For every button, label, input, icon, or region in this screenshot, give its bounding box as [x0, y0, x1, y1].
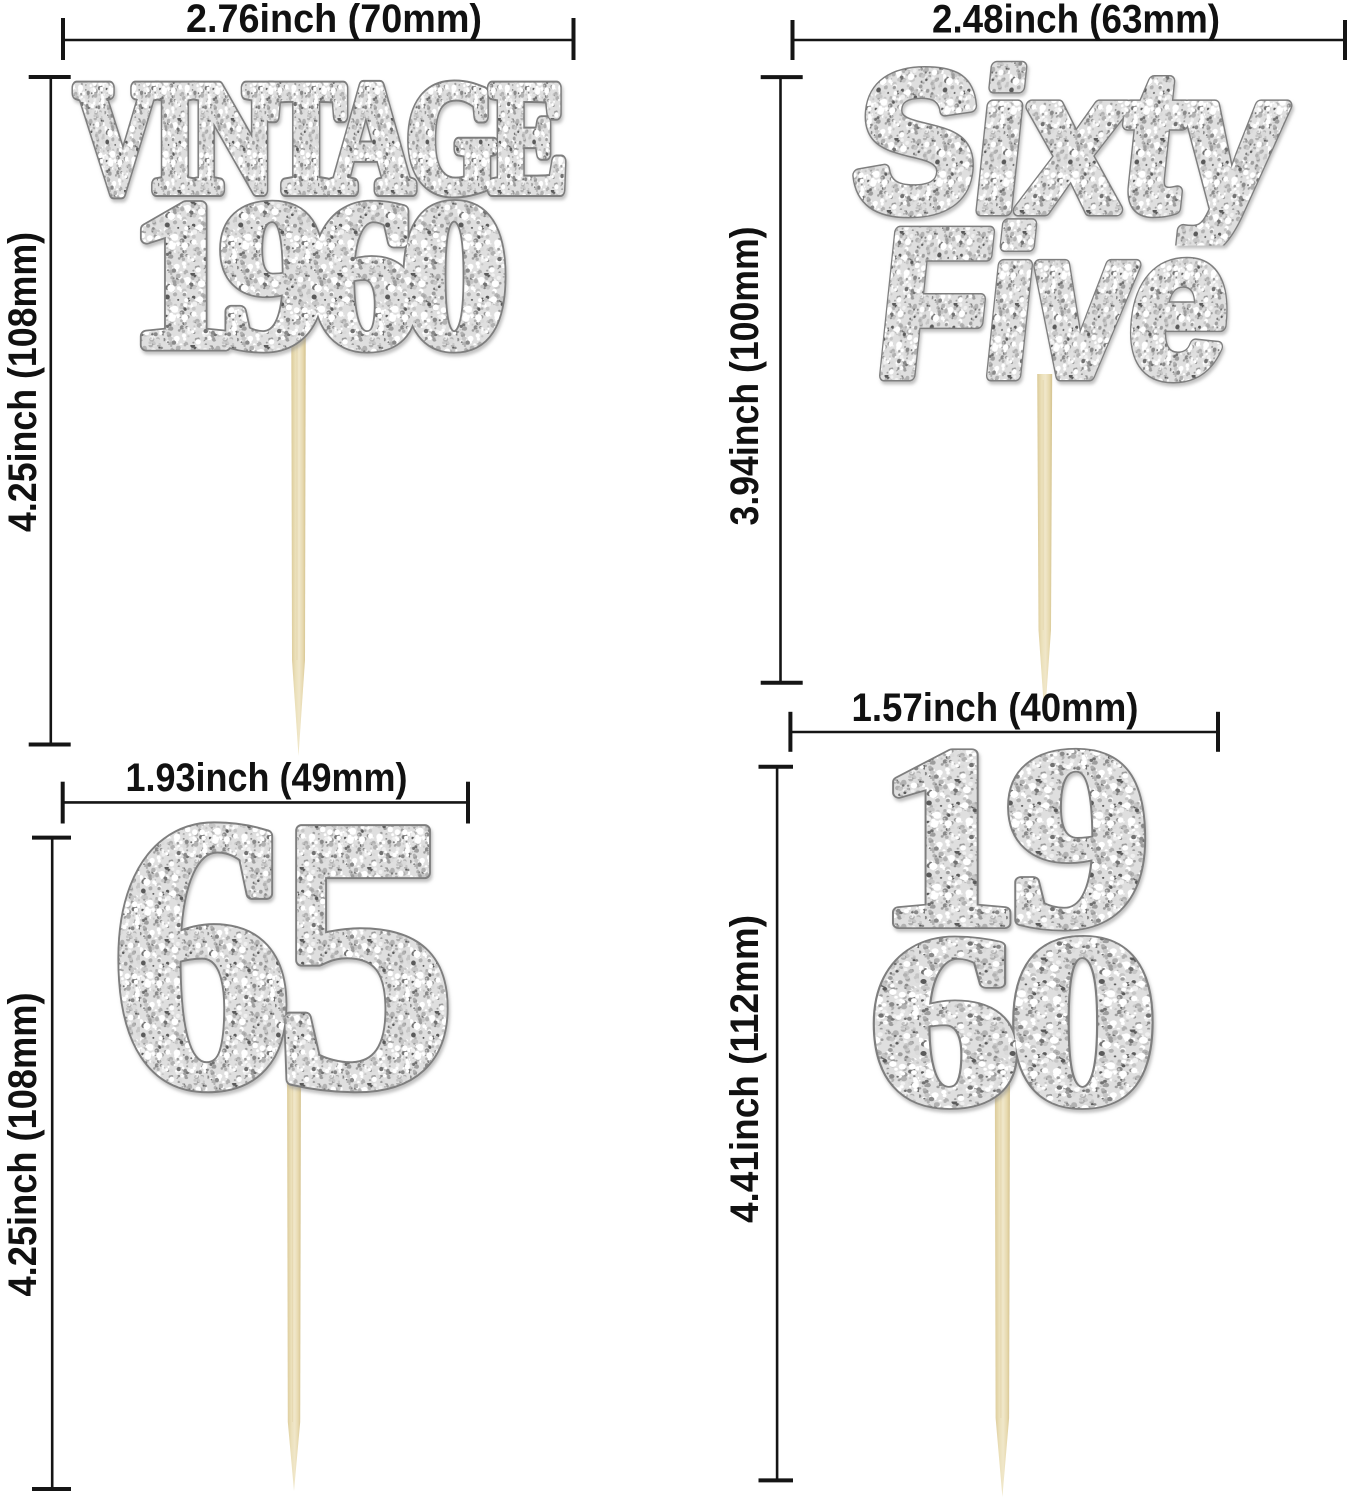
svg-text:60: 60: [870, 886, 1148, 1153]
svg-text:Five: Five: [868, 188, 1240, 420]
svg-text:1960: 1960: [129, 158, 500, 391]
svg-text:4.25inch (108mm): 4.25inch (108mm): [1, 993, 45, 1297]
svg-text:2.76inch (70mm): 2.76inch (70mm): [186, 0, 482, 41]
svg-text:2.48inch (63mm): 2.48inch (63mm): [932, 0, 1220, 42]
svg-text:4.41inch (112mm): 4.41inch (112mm): [723, 915, 767, 1223]
svg-text:3.94inch (100mm): 3.94inch (100mm): [723, 227, 767, 526]
svg-text:4.25inch (108mm): 4.25inch (108mm): [1, 232, 45, 532]
svg-text:1.93inch (49mm): 1.93inch (49mm): [126, 756, 408, 800]
svg-text:1.57inch (40mm): 1.57inch (40mm): [852, 686, 1139, 730]
